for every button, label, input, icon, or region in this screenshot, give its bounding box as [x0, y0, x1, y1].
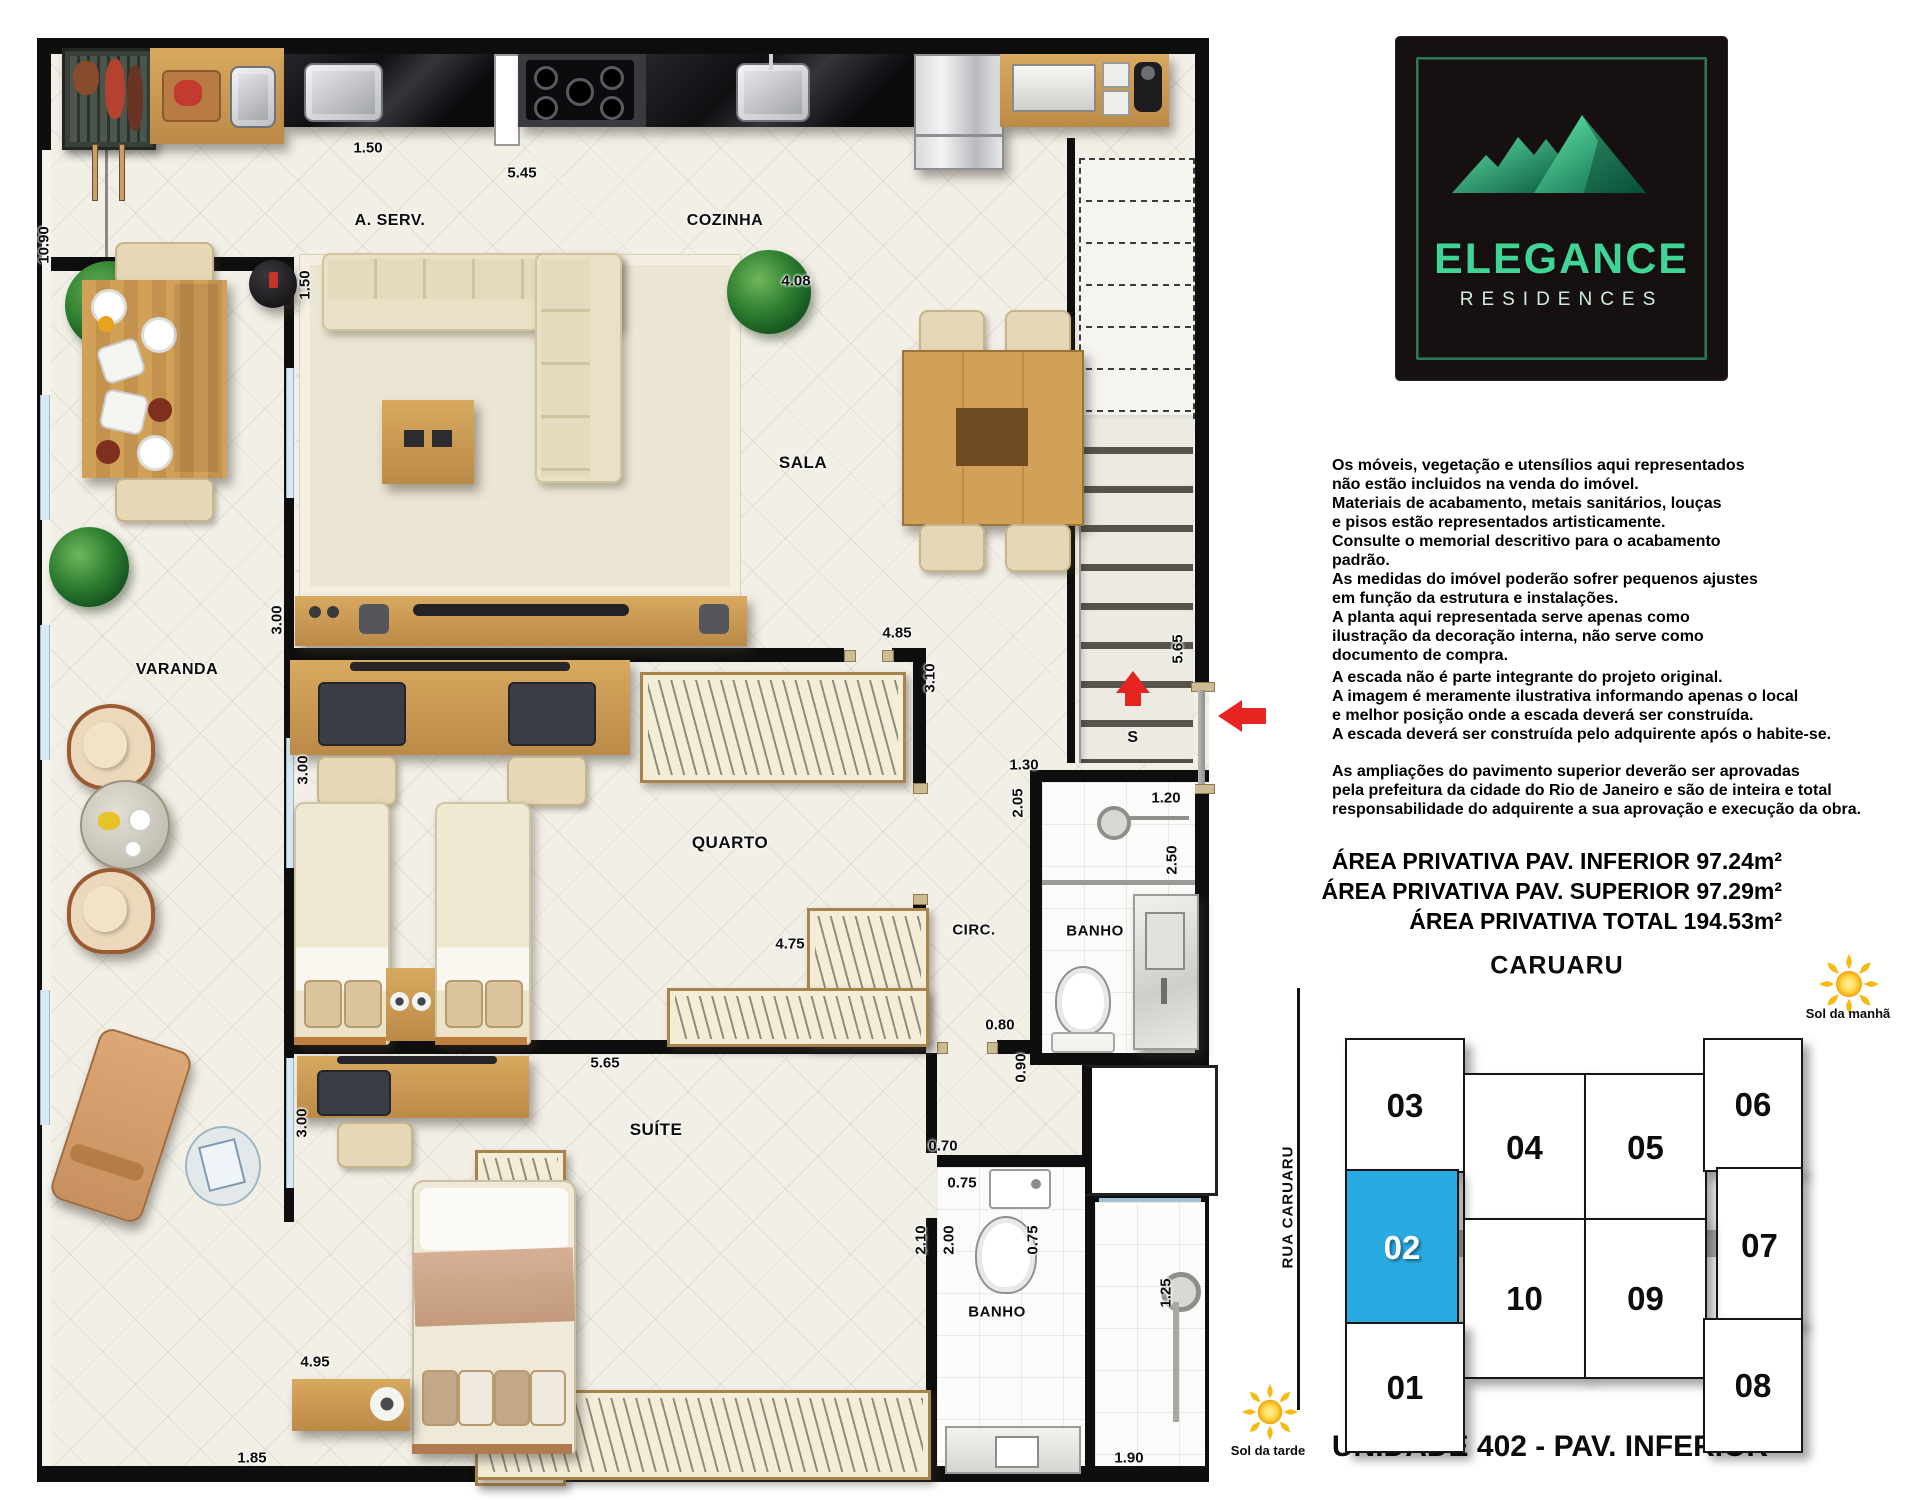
pillow	[304, 980, 342, 1028]
grilled-meat	[105, 59, 125, 119]
keyplan-street-line	[1297, 988, 1300, 1410]
shower-pipe	[1173, 1302, 1179, 1422]
dim-banho1-inner-top: 1.20	[1151, 790, 1180, 807]
unit-number: 04	[1506, 1129, 1543, 1167]
unit-number: 01	[1387, 1369, 1424, 1407]
glass-side-table	[185, 1126, 261, 1206]
varanda-dining-table	[82, 280, 227, 478]
grilled-meat	[127, 65, 143, 131]
wall-banho1-left	[1030, 770, 1042, 1065]
table-lamp	[370, 1387, 404, 1421]
bbq-counter	[150, 48, 284, 144]
keyplan-street-side-label: RUA CARUARU	[1280, 1146, 1297, 1269]
shower-glass	[1099, 1198, 1201, 1202]
stairs-lower-flight	[1079, 415, 1193, 763]
suite-double-bed	[412, 1180, 576, 1454]
coffee-table	[382, 400, 474, 484]
area-total: ÁREA PRIVATIVA TOTAL 194.53m²	[1310, 906, 1782, 936]
serving-dish	[95, 336, 147, 385]
dim-banho2-left-a: 2.10	[913, 1225, 930, 1254]
varanda-bench	[115, 478, 214, 522]
floor-plan: S	[37, 38, 1209, 1482]
dim-cozinha-bancada: 5.45	[507, 165, 536, 182]
keyplan-unit-06: 06	[1703, 1038, 1803, 1172]
single-bed	[435, 802, 531, 1045]
laptop	[318, 682, 406, 746]
floorplan-sheet: S	[0, 0, 1920, 1500]
bowl	[96, 440, 120, 464]
dim-quarto-right: 3.10	[922, 663, 939, 692]
laptop	[317, 1070, 391, 1116]
keyplan-unit-07: 07	[1716, 1167, 1803, 1324]
dim-suite-left: 3.00	[294, 1108, 311, 1137]
small-appliance	[1102, 90, 1130, 116]
dim-banho1-right: 2.50	[1164, 845, 1181, 874]
burner	[534, 66, 558, 90]
skewer	[119, 144, 125, 201]
logo-title: ELEGANCE	[1396, 235, 1727, 284]
pillow	[494, 1370, 530, 1426]
bbq-sink	[230, 66, 276, 128]
counter-cozinha	[646, 54, 914, 127]
speaker	[390, 992, 409, 1011]
desk-tv	[350, 662, 570, 671]
quarto-desk	[290, 660, 630, 755]
room-label-cozinha: COZINHA	[687, 212, 763, 230]
rack-box	[699, 604, 729, 634]
logo-subtitle: RESIDENCES	[1396, 289, 1727, 311]
wall-banho1-top	[1030, 770, 1209, 782]
varanda-armchair	[67, 704, 155, 790]
dim-sala-rack: 3.00	[269, 605, 286, 634]
counter-basin	[995, 1436, 1039, 1468]
room-label-banho-suite: BANHO	[968, 1304, 1026, 1321]
armchair-cushion	[83, 886, 127, 932]
dim-circ-door: 0.90	[1013, 1053, 1030, 1082]
toilet	[1055, 966, 1111, 1036]
barbecue-grill	[62, 48, 156, 150]
cooktop	[526, 60, 634, 120]
kitchen-sink	[736, 63, 810, 122]
keyplan-street-title: CARUARU	[1490, 952, 1623, 981]
coffee-machine	[1134, 62, 1162, 112]
round-side-table	[249, 260, 297, 308]
varanda-armchair	[67, 868, 155, 954]
dim-aserv-width: 1.50	[297, 270, 314, 299]
unit-number: 09	[1627, 1280, 1664, 1318]
unit-number: 03	[1387, 1087, 1424, 1125]
stairs-upper-flight-dashed	[1079, 158, 1195, 419]
door-jamb	[913, 894, 928, 905]
banho1-vanity	[1133, 894, 1199, 1050]
unit-number: 05	[1627, 1129, 1664, 1167]
wall-banho2-top	[937, 1155, 1085, 1167]
fridge	[914, 54, 1004, 170]
dim-aserv-bancada: 1.50	[353, 140, 382, 157]
dim-circ-bottom: 0.80	[985, 1017, 1014, 1034]
small-appliance	[1102, 62, 1130, 88]
keyplan-unit-01: 01	[1345, 1322, 1465, 1453]
banho2-sink	[989, 1169, 1051, 1209]
door-jamb	[913, 783, 928, 794]
keyplan-unit-04: 04	[1463, 1073, 1586, 1222]
dim-sala-top: 4.08	[781, 273, 810, 290]
magazine	[198, 1138, 246, 1192]
quarto-wardrobe-bottom	[667, 988, 929, 1047]
sun-morning-icon	[1819, 954, 1879, 1014]
dim-total-left: 10.90	[36, 226, 53, 264]
brand-logo: ELEGANCE RESIDENCES	[1396, 37, 1727, 380]
dim-banho2-left-b: 2.00	[941, 1225, 958, 1254]
microwave	[1012, 64, 1096, 112]
dim-quarto-closet: 4.75	[775, 936, 804, 953]
wall-banho1-bottom	[1030, 1053, 1209, 1065]
shower-head	[1097, 806, 1131, 840]
pillow	[530, 1370, 566, 1426]
room-label-sala: SALA	[779, 453, 827, 473]
dining-chair	[1005, 524, 1071, 572]
unit-number: 08	[1735, 1367, 1772, 1405]
unit-number: 02	[1384, 1229, 1421, 1267]
sun-morning-label: Sol da manhã	[1788, 1006, 1908, 1021]
suite-desk	[297, 1056, 529, 1118]
arrow-up-stem	[1125, 693, 1141, 706]
armchair-cushion	[83, 722, 127, 768]
varanda-window	[40, 625, 50, 760]
pillow	[422, 1370, 458, 1426]
bed-sheet	[420, 1188, 568, 1250]
wall-right-upper	[1195, 38, 1209, 688]
toilet-tank	[1051, 1032, 1115, 1053]
door-jamb	[987, 1042, 998, 1054]
dim-varanda-bottom: 1.85	[237, 1450, 266, 1467]
dim-quarto-top: 4.85	[882, 625, 911, 642]
nightstand	[386, 968, 435, 1041]
keyplan-unit-05: 05	[1584, 1073, 1707, 1222]
counter-appliances	[1000, 54, 1169, 127]
note-paragraph-1: Os móveis, vegetação e utensílios aqui r…	[1332, 456, 1907, 665]
headboard	[294, 1037, 386, 1045]
door-jamb	[937, 1042, 948, 1054]
vanity-sink	[1145, 912, 1185, 970]
coffee-machine-top	[1141, 66, 1155, 80]
soundbar	[413, 604, 629, 616]
vanity-faucet	[1161, 978, 1167, 1004]
wall-banho2-divider	[1085, 1190, 1095, 1482]
rack-speaker	[327, 606, 339, 618]
private-areas: ÁREA PRIVATIVA PAV. INFERIOR 97.24m² ÁRE…	[1310, 846, 1782, 936]
room-label-varanda: VARANDA	[136, 661, 218, 679]
unit-number: 10	[1506, 1280, 1543, 1318]
raw-meat	[174, 80, 202, 106]
desk-chair	[507, 756, 587, 806]
room-label-banho-superior: BANHO	[1066, 923, 1124, 940]
area-inferior: ÁREA PRIVATIVA PAV. INFERIOR 97.24m²	[1310, 846, 1782, 876]
teacup	[124, 840, 142, 858]
dim-quarto-left: 3.00	[295, 755, 312, 784]
plant	[727, 250, 811, 334]
cutting-board	[162, 70, 221, 122]
counter-cooktop	[518, 54, 646, 127]
sala-dining-table	[902, 350, 1084, 526]
varanda-window	[40, 990, 50, 1125]
shower-bar	[1127, 816, 1189, 820]
grilled-meat	[73, 61, 99, 95]
upper-landing-box	[1082, 1065, 1218, 1196]
desk-chair	[317, 756, 397, 806]
unit-number: 07	[1741, 1227, 1778, 1265]
sun-afternoon-label: Sol da tarde	[1206, 1443, 1330, 1458]
serving-dish	[98, 388, 149, 436]
arrow-up-icon	[1116, 671, 1150, 693]
pillow	[344, 980, 382, 1028]
banho1-divider	[1042, 880, 1195, 885]
mountain-icon	[1442, 89, 1682, 209]
chaise-lounge	[48, 1026, 195, 1226]
rack-speaker	[309, 606, 321, 618]
table-tray	[404, 430, 424, 447]
room-label-quarto: QUARTO	[692, 833, 768, 853]
table-center	[956, 408, 1028, 466]
laundry-sink	[304, 63, 383, 122]
bowl	[148, 398, 172, 422]
dim-banho1-left: 2.05	[1010, 788, 1027, 817]
suite-desk-tv	[337, 1056, 497, 1064]
dim-banho1-top: 1.30	[1009, 757, 1038, 774]
plate	[144, 320, 174, 350]
pillow	[458, 1370, 494, 1426]
dining-chair	[919, 524, 985, 572]
wardrobe-rail	[648, 680, 898, 775]
dim-suite-door: 0.70	[928, 1138, 957, 1155]
teapot	[128, 808, 152, 832]
flowers	[98, 812, 120, 830]
area-superior: ÁREA PRIVATIVA PAV. SUPERIOR 97.29m²	[1310, 876, 1782, 906]
note-paragraph-2: A escada não é parte integrante do proje…	[1332, 668, 1907, 744]
speaker	[412, 992, 431, 1011]
keyplan-unit-09: 09	[1584, 1218, 1707, 1379]
dim-suite-bed-wall: 4.95	[300, 1354, 329, 1371]
headboard	[435, 1037, 527, 1045]
sofa-right-run	[535, 253, 622, 483]
dim-suite-top: 5.65	[590, 1055, 619, 1072]
faucet	[769, 54, 773, 70]
pillow	[445, 980, 483, 1028]
room-label-circ: CIRC.	[952, 922, 995, 939]
keyplan-unit-10: 10	[1463, 1218, 1586, 1379]
bed-blanket	[413, 1247, 575, 1327]
plant	[49, 527, 129, 607]
wall-left-corner	[37, 38, 51, 150]
varanda-door-glass	[286, 738, 294, 868]
table-seam	[174, 284, 218, 472]
burner	[600, 96, 624, 120]
entrance-door	[1198, 690, 1205, 784]
dim-banho2-inner: 0.75	[1025, 1225, 1042, 1254]
burner	[600, 66, 624, 90]
desk-chair	[337, 1122, 413, 1168]
room-label-a-serv: A. SERV.	[355, 212, 426, 230]
fridge-door-split	[916, 134, 1002, 137]
single-bed	[294, 802, 390, 1045]
dim-banho2-bottom: 1.90	[1114, 1450, 1143, 1467]
unit-number: 06	[1735, 1086, 1772, 1124]
room-label-suite: SUÍTE	[630, 1120, 683, 1140]
dim-banho2-right: 1.25	[1158, 1278, 1175, 1307]
kitchen-partition	[494, 54, 520, 146]
headboard	[412, 1444, 572, 1454]
quarto-wardrobe-top	[640, 672, 906, 783]
door-jamb	[844, 650, 856, 662]
laptop	[508, 682, 596, 746]
sink-drain	[1031, 1179, 1041, 1189]
wardrobe-rail	[675, 996, 921, 1039]
remote-control	[269, 272, 278, 288]
sofa-cushions	[541, 259, 590, 477]
varanda-window	[40, 395, 50, 520]
suite-bench	[292, 1379, 410, 1431]
pillow	[485, 980, 523, 1028]
arrow-left-stem	[1242, 708, 1266, 724]
keyplan-unit-08: 08	[1703, 1318, 1803, 1453]
rack-box	[359, 604, 389, 634]
door-jamb	[882, 650, 894, 662]
sun-afternoon-icon	[1242, 1384, 1298, 1440]
keyplan-unit-03: 03	[1345, 1038, 1465, 1173]
table-tray	[432, 430, 452, 447]
counter-a-serv	[284, 54, 494, 127]
banho2-counter	[945, 1426, 1081, 1474]
tv-rack	[295, 596, 747, 646]
varanda-door-glass	[286, 368, 294, 498]
keyplan-unit-02-highlighted: 02	[1345, 1169, 1459, 1326]
varanda-coffee-table	[80, 780, 170, 870]
chaise-fold	[68, 1142, 146, 1183]
note-paragraph-3: As ampliações do pavimento superior deve…	[1332, 762, 1907, 819]
dim-escada: 5.65	[1170, 634, 1187, 663]
stairs-direction-label: S	[1127, 729, 1138, 747]
banho2-floor-shower	[1095, 1202, 1205, 1466]
plate	[140, 438, 170, 468]
arrow-left-icon	[1218, 700, 1242, 732]
skewer	[92, 144, 98, 201]
burner	[566, 78, 594, 106]
fruit	[98, 316, 114, 332]
dim-banho2-sink: 0.75	[947, 1175, 976, 1192]
burner	[534, 96, 558, 120]
